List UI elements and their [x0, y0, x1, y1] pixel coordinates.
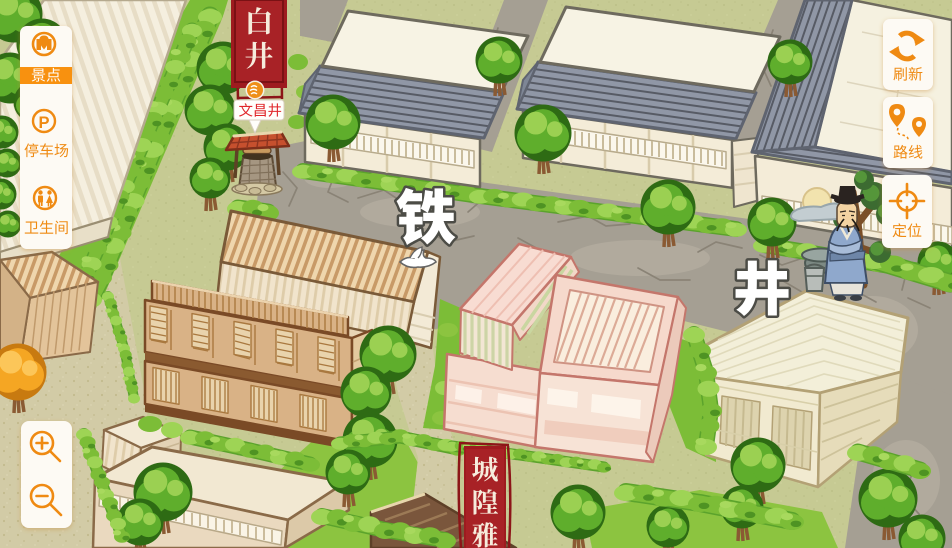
- svg-text:P: P: [38, 114, 49, 132]
